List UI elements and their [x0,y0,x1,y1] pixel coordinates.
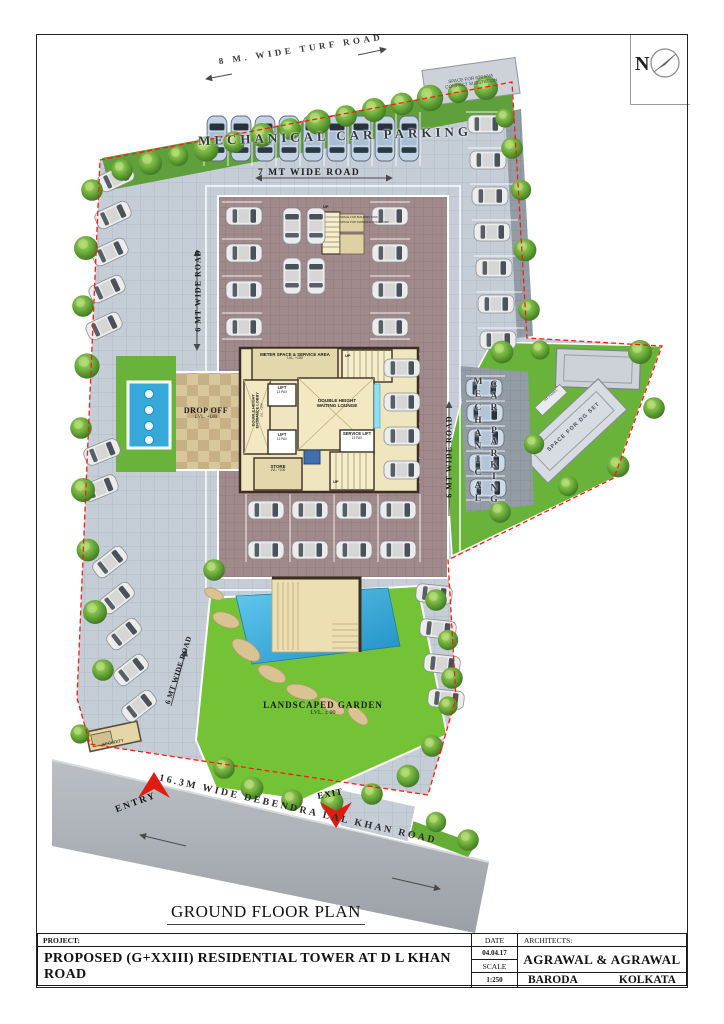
scale-value: 1:250 [472,973,518,987]
sheet-border [36,34,688,988]
architect-offices: BARODA KOLKATA [518,973,686,987]
date-label: DATE [472,934,518,947]
drawing-sheet: 8 M. WIDE TURF ROAD MECHANICAL CAR PARKI… [0,0,724,1024]
office-baroda: BARODA [528,974,578,986]
architects-name: AGRAWAL & AGRAWAL [518,947,686,973]
office-kolkata: KOLKATA [619,974,676,986]
title-block: PROJECT: DATE ARCHITECTS: PROPOSED (G+XX… [37,933,687,986]
project-label: PROJECT: [38,934,472,947]
project-name: PROPOSED (G+XXIII) RESIDENTIAL TOWER AT … [38,947,472,987]
architects-label: ARCHITECTS: [518,934,686,947]
date-value: 04.04.17 [472,947,518,960]
scale-label: SCALE [472,960,518,973]
